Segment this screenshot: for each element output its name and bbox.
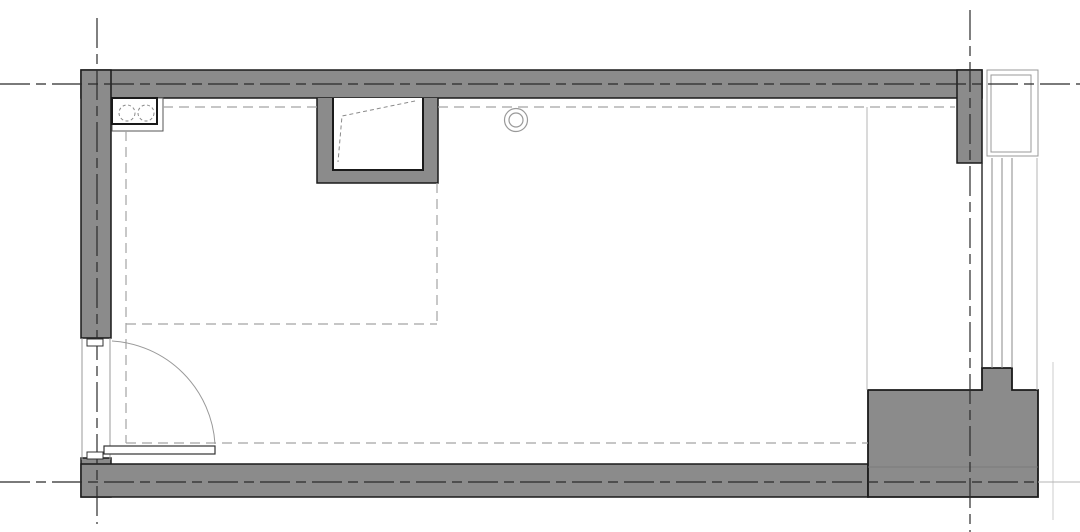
corner-pier [868,368,1038,497]
window-panel-outer [987,70,1038,156]
bottom-wall [81,464,868,497]
door-leaf [104,446,215,454]
door-swing-arc [112,341,215,444]
ceiling-pipe-outer [505,109,528,132]
floor-plan-canvas [0,0,1080,532]
ceiling-pipe-inner [509,113,523,127]
door-jamb-bottom [87,452,103,459]
left-wall [81,70,111,338]
door-jamb-top [87,339,103,346]
floor-plan [0,0,1080,532]
